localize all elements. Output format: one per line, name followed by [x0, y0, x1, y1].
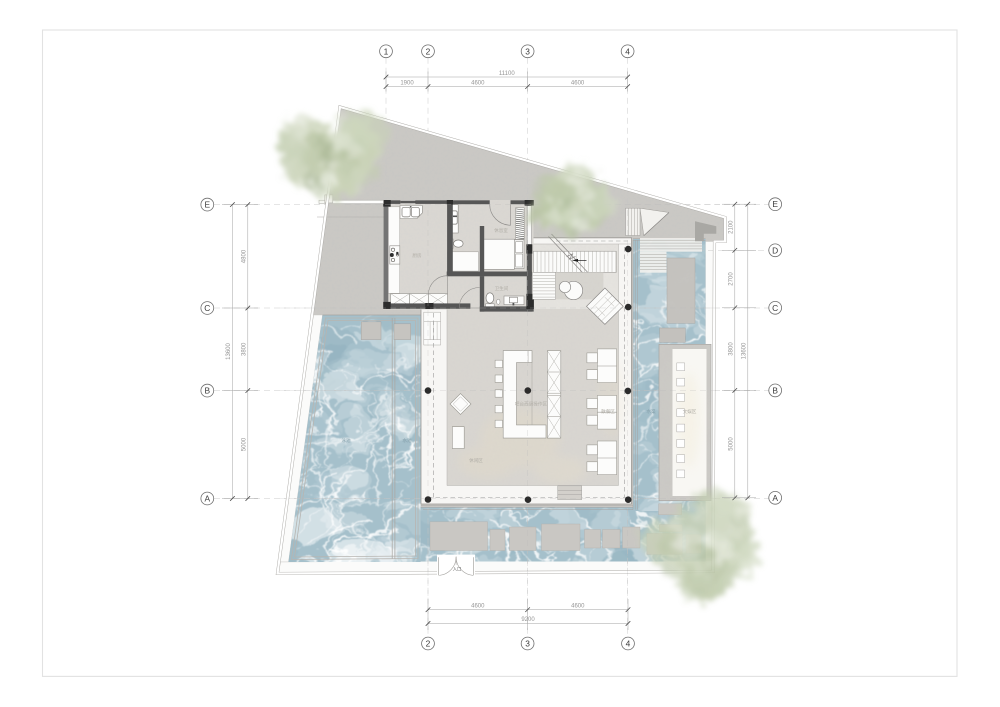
svg-text:E: E [772, 199, 778, 209]
svg-text:C: C [772, 303, 778, 313]
svg-text:4600: 4600 [571, 603, 585, 609]
svg-text:休闲区: 休闲区 [469, 457, 483, 464]
svg-text:4600: 4600 [471, 80, 485, 86]
svg-text:卫生间: 卫生间 [495, 285, 509, 292]
svg-text:入口: 入口 [453, 567, 462, 572]
svg-text:水池: 水池 [402, 437, 412, 443]
svg-text:5000: 5000 [729, 437, 735, 451]
svg-text:D: D [772, 245, 778, 255]
svg-text:休息室: 休息室 [494, 227, 508, 234]
svg-text:3800: 3800 [729, 342, 735, 356]
svg-text:厨房: 厨房 [412, 252, 422, 259]
svg-text:3800: 3800 [242, 342, 248, 356]
svg-text:2100: 2100 [729, 220, 735, 234]
svg-text:C: C [204, 303, 210, 313]
svg-text:3: 3 [525, 639, 530, 649]
svg-text:13600: 13600 [226, 342, 232, 359]
svg-text:水渠: 水渠 [646, 408, 656, 415]
svg-text:文娱区: 文娱区 [683, 408, 697, 415]
svg-text:4: 4 [625, 46, 630, 56]
svg-text:泳池: 泳池 [341, 437, 351, 444]
svg-text:11100: 11100 [499, 71, 515, 77]
svg-text:E: E [205, 200, 211, 210]
svg-text:4: 4 [626, 639, 631, 649]
svg-text:2: 2 [426, 639, 431, 649]
svg-text:2: 2 [426, 46, 431, 56]
svg-text:1900: 1900 [400, 80, 414, 86]
svg-text:1: 1 [384, 46, 389, 56]
svg-text:3: 3 [525, 46, 530, 56]
svg-text:2700: 2700 [729, 272, 735, 286]
svg-text:5000: 5000 [242, 437, 248, 451]
svg-text:吧台西厨操作区: 吧台西厨操作区 [515, 401, 548, 408]
svg-text:9200: 9200 [521, 617, 535, 623]
svg-text:散餐区: 散餐区 [601, 408, 615, 415]
svg-text:4600: 4600 [571, 80, 585, 86]
svg-text:4800: 4800 [242, 249, 248, 263]
svg-text:A: A [205, 494, 211, 504]
svg-text:A: A [772, 493, 778, 503]
svg-text:B: B [772, 385, 778, 395]
svg-text:4600: 4600 [471, 603, 485, 609]
svg-text:B: B [205, 386, 211, 396]
svg-text:13600: 13600 [742, 342, 748, 359]
